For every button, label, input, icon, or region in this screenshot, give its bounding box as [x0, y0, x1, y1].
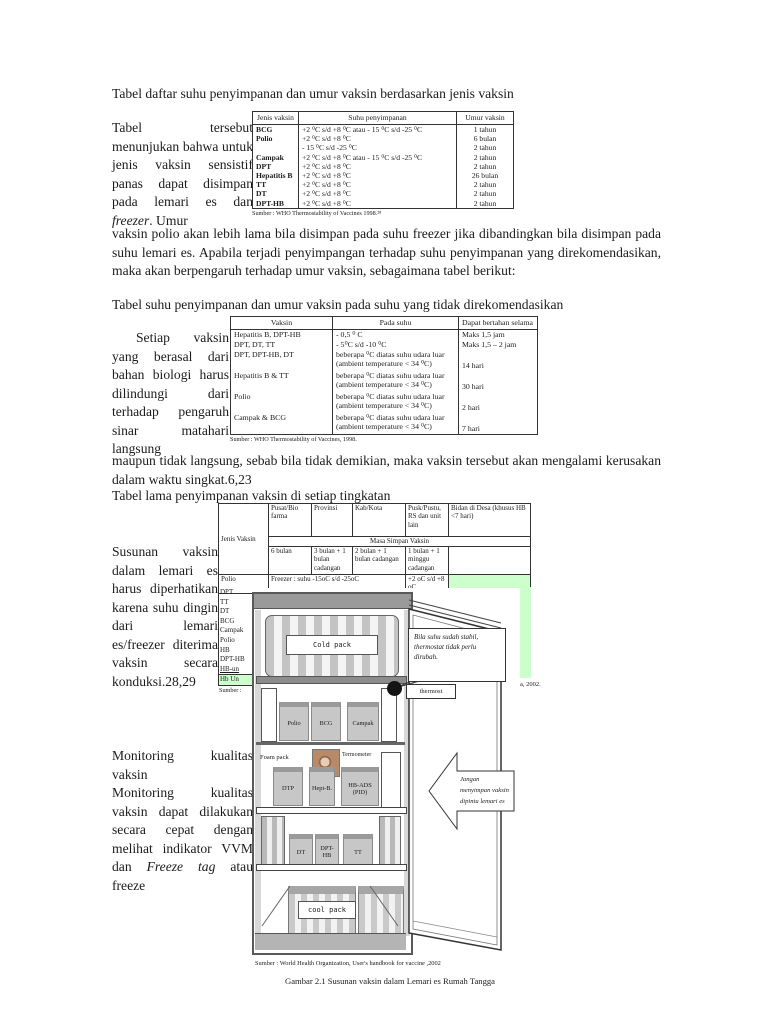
list-item: HB-un [219, 665, 253, 675]
cell: 7 hari [459, 413, 538, 435]
cell: DPT-HB [253, 199, 299, 209]
text-run-italic: Freeze tag [147, 859, 216, 874]
cell: 30 hari [459, 371, 538, 392]
cell: 1 bulan + 1 minggu cadangan [406, 547, 449, 575]
cell: beberapa ⁰C diatas suhu udara luar (ambi… [333, 392, 459, 413]
table-row: DT+2 ⁰C s/d +8 ⁰C2 tahun [253, 189, 514, 198]
speech-bubble: Bila suhu sudah stabil, thermostat tidak… [408, 628, 506, 682]
cell: DPT, DPT-HB, DT [231, 350, 333, 371]
list-item: BCG [219, 617, 253, 627]
column-header: Vaksin [231, 317, 333, 330]
cell: 6 bulan [457, 134, 514, 143]
column-header: Pusk/Pustu, RS dan unit lain [406, 504, 449, 537]
column-header: Suhu penyimpanan [299, 112, 457, 125]
arrow-note-line: menyimpan vaksin [460, 785, 514, 796]
cell: Maks 1,5 jam [459, 329, 538, 340]
text-run: Tabel tersebut menunjukan bahwa untuk je… [112, 120, 253, 209]
paragraph-left-1: Tabel tersebut menunjukan bahwa untuk je… [112, 119, 253, 230]
list-item: HB [219, 646, 253, 656]
table3-title: Tabel lama penyimpanan vaksin di setiap … [112, 488, 668, 504]
column-header: Dapat bertahan selama [459, 317, 538, 330]
cell: 1 tahun [457, 125, 514, 135]
list-item: DPT [219, 588, 253, 598]
list-item: DPT-HB [219, 655, 253, 665]
cell: Campak [253, 153, 299, 162]
paragraph-main-2: maupun tidak langsung, sebab bila tidak … [112, 452, 661, 489]
cell: +2 ⁰C s/d +8 ⁰C [299, 171, 457, 180]
cell: DT [253, 189, 299, 198]
table-source: Sumber : WHO Thermostability of Vaccines… [230, 436, 538, 443]
refrigerator-figure: Cold pack Polio BCG Campak Foam pack Ter… [252, 588, 520, 960]
cell: +2 ⁰C s/d +8 ⁰C atau - 15 ⁰C s/d -25 ⁰C [299, 153, 457, 162]
column-header: Pada suhu [333, 317, 459, 330]
arrow-note-line: dipintu lemari es [460, 796, 514, 807]
cell: +2 ⁰C s/d +8 ⁰C [299, 189, 457, 198]
list-item: Campak [219, 626, 253, 636]
figure-source: Sumber : World Health Organization, User… [255, 960, 441, 967]
list-item: Polio [219, 636, 253, 646]
arrow-note-line: Jangan [460, 774, 514, 785]
table-masa-simpan: Jenis Vaksin Pusat/Bio farma Provinsi Ka… [218, 503, 531, 594]
list-item: TT [219, 598, 253, 608]
column-header: Pusat/Bio farma [269, 504, 312, 537]
cell: 2 tahun [457, 153, 514, 162]
thermostat-label: thermost [406, 684, 456, 699]
cell [449, 547, 531, 575]
table-row: TT+2 ⁰C s/d +8 ⁰C2 tahun [253, 180, 514, 189]
cell: 14 hari [459, 350, 538, 371]
cell: 2 hari [459, 392, 538, 413]
list-item: DT [219, 607, 253, 617]
cell: Hepatitis B [253, 171, 299, 180]
table-row: Poliobeberapa ⁰C diatas suhu udara luar … [231, 392, 538, 413]
source-fragment: a, 2002. [520, 681, 541, 688]
list-item-highlighted: Hb Un [219, 674, 253, 685]
cell: Hepatitis B, DPT-HB [231, 329, 333, 340]
cell: TT [253, 180, 299, 189]
table-row: DPT, DPT-HB, DTbeberapa ⁰C diatas suhu u… [231, 350, 538, 371]
cell [253, 143, 299, 152]
document-page: Tabel daftar suhu penyimpanan dan umur v… [0, 0, 768, 1024]
cell: Hepatitis B & TT [231, 371, 333, 392]
cell: 2 tahun [457, 143, 514, 152]
table-row: Campak+2 ⁰C s/d +8 ⁰C atau - 15 ⁰C s/d -… [253, 153, 514, 162]
cell: 2 tahun [457, 162, 514, 171]
table-row: - 15 ⁰C s/d -25 ⁰C2 tahun [253, 143, 514, 152]
cell: BCG [253, 125, 299, 135]
cell: Maks 1,5 – 2 jam [459, 340, 538, 350]
table-row: DPT, DT, TT- 5⁰C s/d -10 ⁰CMaks 1,5 – 2 … [231, 340, 538, 350]
column-header: Umur vaksin [457, 112, 514, 125]
cell: +2 ⁰C s/d +8 ⁰C [299, 180, 457, 189]
cell: Jenis Vaksin [219, 504, 269, 575]
table2-title: Tabel suhu penyimpanan dan umur vaksin p… [112, 297, 668, 313]
table-header-row: Jenis Vaksin Pusat/Bio farma Provinsi Ka… [219, 504, 531, 537]
paragraph-left-4: Monitoring kualitas vaksin Monitoring ku… [112, 747, 253, 895]
cell: +2 ⁰C s/d +8 ⁰C [299, 162, 457, 171]
table-suhu-umur-vaksin: Jenis vaksin Suhu penyimpanan Umur vaksi… [252, 111, 514, 217]
column-header: Bidan di Desa (khusus HB <7 hari) [449, 504, 531, 537]
table-header-row: Vaksin Pada suhu Dapat bertahan selama [231, 317, 538, 330]
table-suhu-tidak-direkomendasikan: Vaksin Pada suhu Dapat bertahan selama H… [230, 316, 538, 443]
page-title: Tabel daftar suhu penyimpanan dan umur v… [112, 86, 668, 102]
column-header: Jenis vaksin [253, 112, 299, 125]
table-row: Hepatitis B & TTbeberapa ⁰C diatas suhu … [231, 371, 538, 392]
paragraph-main-1: vaksin polio akan lebih lama bila disimp… [112, 225, 661, 281]
table-row: Hepatitis B+2 ⁰C s/d +8 ⁰C26 bulan [253, 171, 514, 180]
cell: 2 tahun [457, 199, 514, 209]
cell: 2 tahun [457, 180, 514, 189]
cell: 26 bulan [457, 171, 514, 180]
table-header-row: Jenis vaksin Suhu penyimpanan Umur vaksi… [253, 112, 514, 125]
cell: Polio [253, 134, 299, 143]
thermostat-knob [387, 681, 402, 696]
cell: beberapa ⁰C diatas suhu udara luar (ambi… [333, 371, 459, 392]
cell: beberapa ⁰C diatas suhu udara luar (ambi… [333, 350, 459, 371]
table-row: Polio+2 ⁰C s/d +8 ⁰C6 bulan [253, 134, 514, 143]
table-row: Hepatitis B, DPT-HB- 0,5 ⁰ CMaks 1,5 jam [231, 329, 538, 340]
table-row: DPT+2 ⁰C s/d +8 ⁰C2 tahun [253, 162, 514, 171]
vaccine-type-list: DPT TT DT BCG Campak Polio HB DPT-HB HB-… [218, 588, 253, 686]
table-row: DPT-HB+2 ⁰C s/d +8 ⁰C2 tahun [253, 199, 514, 209]
table-source: Sumber : WHO Thermostability of Vaccines… [252, 210, 514, 217]
cell: +2 ⁰C s/d +8 ⁰C [299, 199, 457, 209]
figure-caption: Gambar 2.1 Susunan vaksin dalam Lemari e… [0, 976, 768, 986]
cell: DPT [253, 162, 299, 171]
cell: - 15 ⁰C s/d -25 ⁰C [299, 143, 457, 152]
cell: Polio [231, 392, 333, 413]
table-source-fragment: Sumber : [219, 687, 242, 694]
cell: - 0,5 ⁰ C [333, 329, 459, 340]
cell: 6 bulan [269, 547, 312, 575]
table-row: BCG+2 ⁰C s/d +8 ⁰C atau - 15 ⁰C s/d -25 … [253, 125, 514, 135]
cell: +2 ⁰C s/d +8 ⁰C atau - 15 ⁰C s/d -25 ⁰C [299, 125, 457, 135]
cell: 3 bulan + 1 bulan cadangan [312, 547, 353, 575]
paragraph-left-3: Susunan vaksin dalam lemari es harus dip… [112, 543, 218, 691]
cell: DPT, DT, TT [231, 340, 333, 350]
arrow-note: Jangan menyimpan vaksin dipintu lemari e… [460, 774, 514, 807]
cell: beberapa ⁰C diatas suhu udara luar (ambi… [333, 413, 459, 435]
cell: 2 tahun [457, 189, 514, 198]
cell: Masa Simpan Vaksin [269, 537, 531, 547]
column-header: Provinsi [312, 504, 353, 537]
cell: Campak & BCG [231, 413, 333, 435]
section-heading: Monitoring kualitas vaksin [112, 747, 253, 784]
highlight-strip [519, 587, 531, 678]
cell: +2 ⁰C s/d +8 ⁰C [299, 134, 457, 143]
column-header: Kab/Kota [353, 504, 406, 537]
paragraph-left-2: Setiap vaksin yang berasal dari bahan bi… [112, 329, 229, 459]
cell: - 5⁰C s/d -10 ⁰C [333, 340, 459, 350]
cell: 2 bulan + 1 bulan cadangan [353, 547, 406, 575]
table-row: Campak & BCGbeberapa ⁰C diatas suhu udar… [231, 413, 538, 435]
